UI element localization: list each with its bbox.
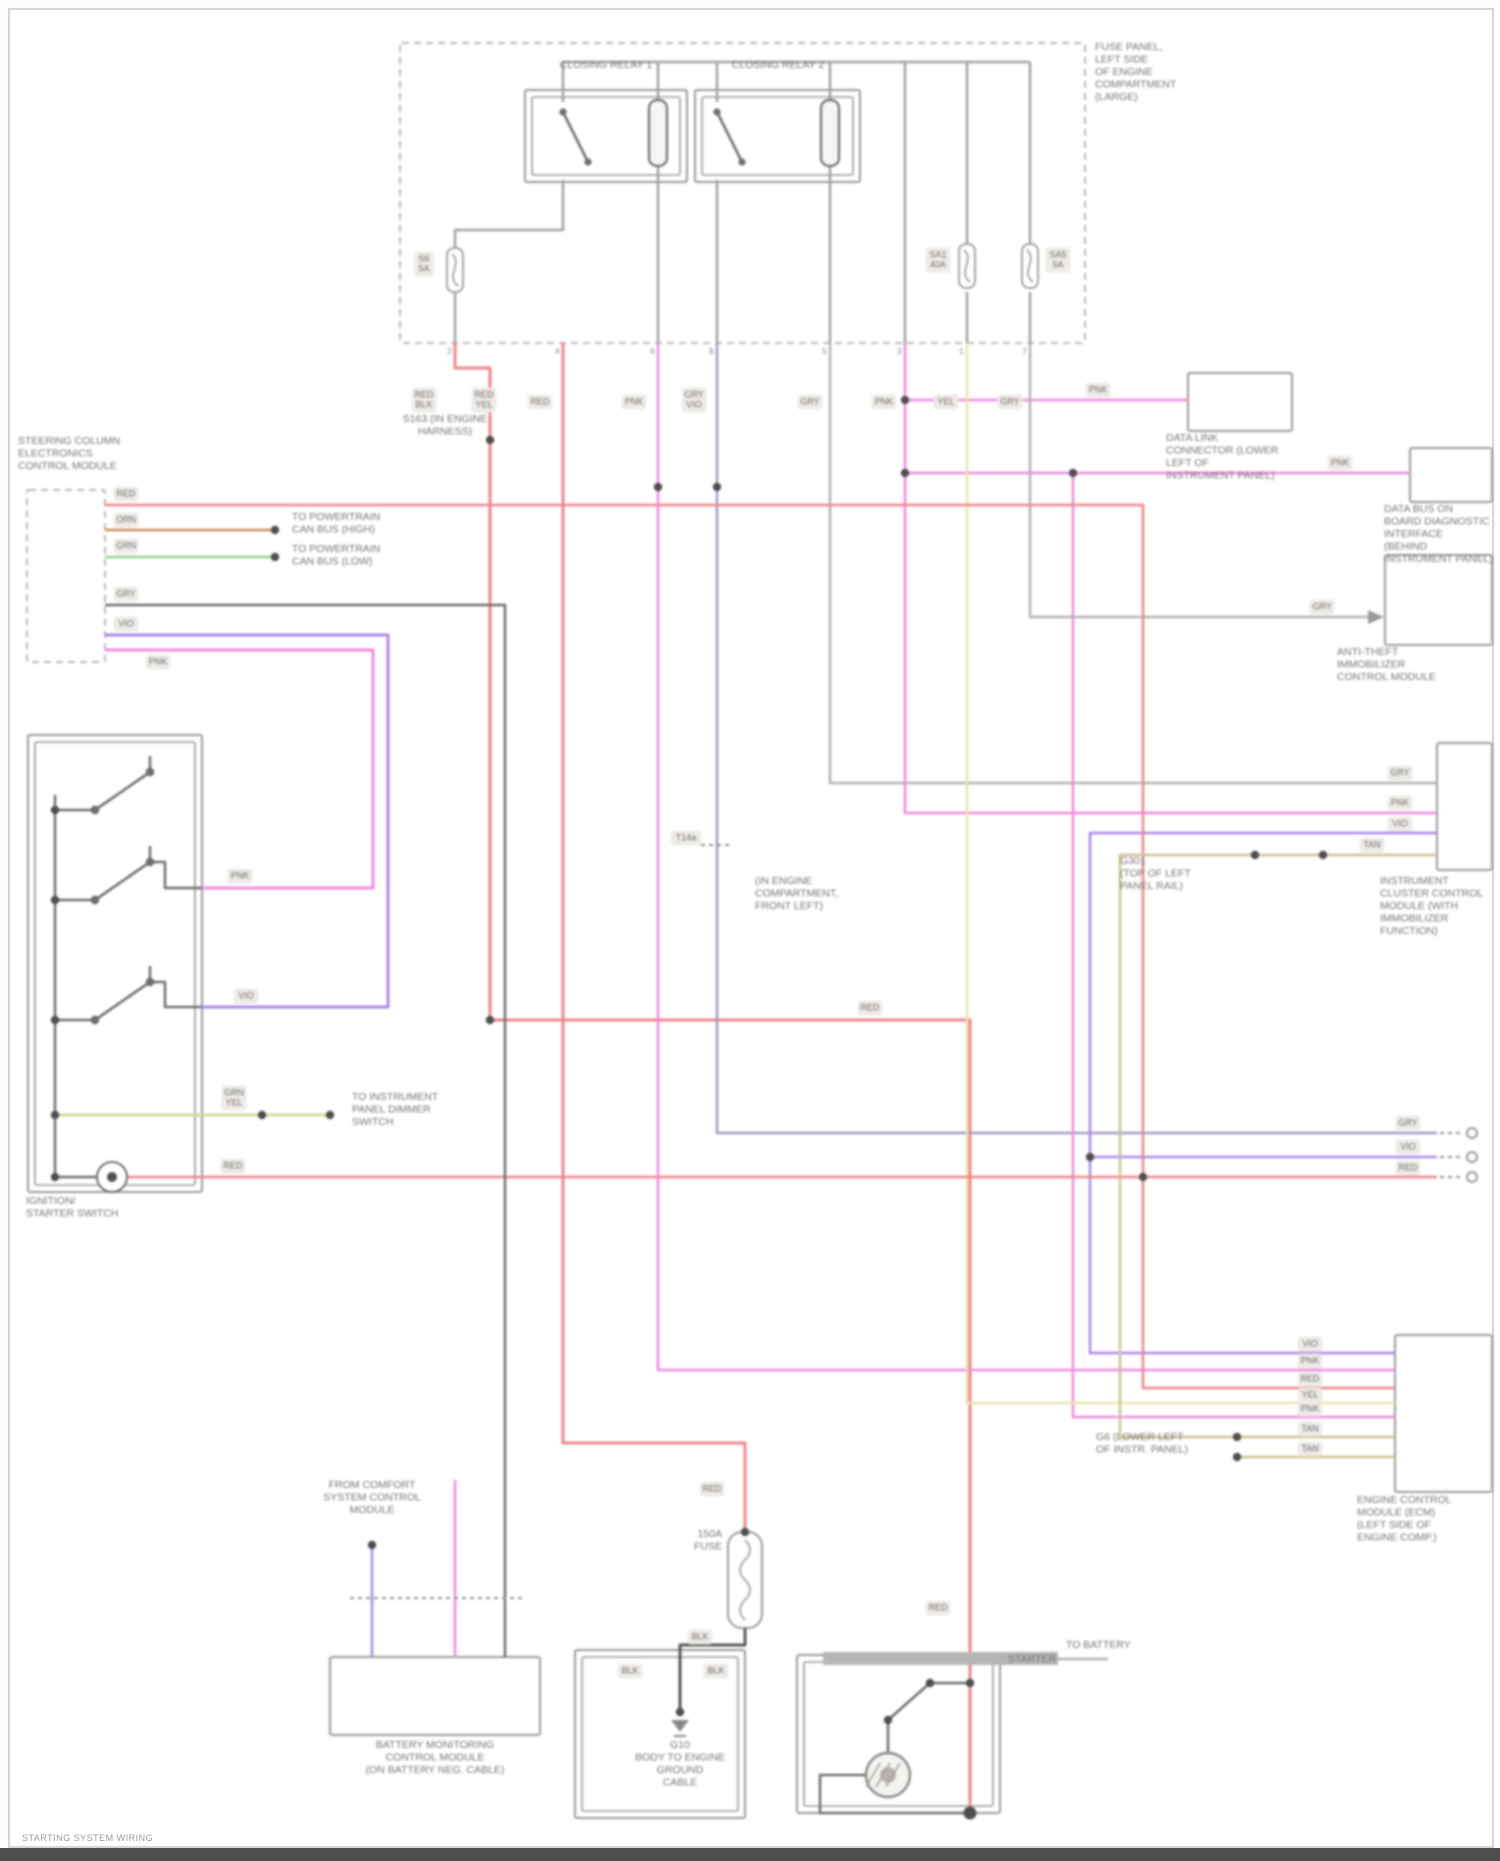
ground-box-label: CABLE xyxy=(663,1777,697,1789)
junction-dot xyxy=(1086,1153,1094,1161)
ecm-box xyxy=(1395,1335,1492,1492)
wire-label: TAN xyxy=(1301,1424,1318,1434)
wire-trunk-pnk-kline xyxy=(905,343,1437,813)
relay1-contact-tip xyxy=(584,158,591,165)
wire-label: BLK xyxy=(707,1666,724,1676)
data-link-connector-label: LEFT OF xyxy=(1166,457,1209,469)
battery-monitor-label: BATTERY MONITORING xyxy=(376,1739,494,1751)
fuse-panel-label: (LARGE) xyxy=(1095,91,1138,103)
data-link-connector-label: DATA LINK xyxy=(1166,432,1218,444)
junction-dot xyxy=(51,806,59,814)
wire-label: PNK xyxy=(149,657,168,667)
starter-label: STARTER xyxy=(1008,1653,1056,1665)
dimmer-label: TO INSTRUMENT xyxy=(352,1091,439,1103)
diagnostic-interface-label: (BEHIND xyxy=(1384,541,1428,553)
pin-number: 5 xyxy=(822,346,827,356)
wire-label: RED xyxy=(474,390,494,400)
relay2-contact-pivot xyxy=(713,108,720,115)
wire-label: VIO xyxy=(238,991,254,1001)
ground-g301-label: (TOP OF LEFT xyxy=(1120,868,1191,880)
fuse-panel-label: COMPARTMENT xyxy=(1095,79,1177,91)
wire-label: GRY xyxy=(1390,768,1409,778)
relay2-contact-tip xyxy=(738,158,745,165)
junction-dot xyxy=(368,1541,376,1549)
junction-dot xyxy=(1319,851,1327,859)
wire-label: RED xyxy=(116,489,136,499)
wire-label: YEL xyxy=(1301,1390,1318,1400)
wire-label: VIO xyxy=(1302,1339,1318,1349)
wire-label: PNK xyxy=(875,397,894,407)
wire-label: BLK xyxy=(691,1632,708,1642)
fusible-link-label: FUSE xyxy=(694,1541,722,1553)
comfort-label: FROM COMFORT xyxy=(329,1479,416,1491)
ground-box-label: GROUND xyxy=(657,1764,704,1776)
pin-number: 2 xyxy=(447,346,452,356)
junction-dot xyxy=(1139,1173,1147,1181)
wire-label: VIO xyxy=(1392,819,1408,829)
can-low-label: CAN BUS (LOW) xyxy=(292,556,373,568)
splice-s163-label: HARNESS) xyxy=(418,426,472,438)
junction-dot xyxy=(51,896,59,904)
battery-label: TO BATTERY xyxy=(1066,1639,1131,1651)
wiring-diagram-svg: 24685317REDBLKREDYELREDPNKGRYVIOGRYPNKYE… xyxy=(0,0,1500,1861)
wire-label: GRY xyxy=(684,390,703,400)
wire-label: RED xyxy=(414,390,434,400)
junction-dot xyxy=(486,436,494,444)
junction-dot xyxy=(713,483,721,491)
wire-label: RED xyxy=(702,1484,722,1494)
bottom-border-bar xyxy=(0,1848,1500,1861)
instrument-cluster-box xyxy=(1437,743,1492,870)
wire-tan-ground-run xyxy=(1120,855,1437,1437)
immobilizer-box xyxy=(1385,555,1492,645)
wire-label: PNK xyxy=(1301,1356,1320,1366)
ign-contact-2-tip xyxy=(146,858,153,865)
wire-trunk-gry xyxy=(830,343,1437,783)
pin-number: 1 xyxy=(959,346,964,356)
ignition-switch-label: STARTER SWITCH xyxy=(26,1208,118,1220)
pin-number: 7 xyxy=(1022,346,1027,356)
fuse-panel-label: FUSE PANEL, xyxy=(1095,41,1163,53)
wire-label: PNK xyxy=(1301,1404,1320,1414)
wire-label: SA5 xyxy=(1049,250,1066,260)
wire-label: PNK xyxy=(1391,798,1410,808)
ecm-label: ENGINE COMP.) xyxy=(1357,1532,1437,1544)
wire-label: GRY xyxy=(1000,397,1019,407)
junction-dot xyxy=(51,1111,59,1119)
comfort-label: SYSTEM CONTROL xyxy=(323,1492,421,1504)
pin-number: 3 xyxy=(897,346,902,356)
wire-pnk-to-ecm xyxy=(1073,473,1395,1417)
wire-label: RED xyxy=(223,1161,243,1171)
data-link-connector-label: CONNECTOR (LOWER xyxy=(1166,445,1279,457)
schematic-page: 24685317REDBLKREDYELREDPNKGRYVIOGRYPNKYE… xyxy=(0,0,1500,1861)
junction-dot xyxy=(654,483,662,491)
instrument-cluster-label: INSTRUMENT xyxy=(1380,875,1449,887)
wire-label: RED xyxy=(1300,1374,1320,1384)
steering-module-label: ELECTRONICS xyxy=(18,448,93,460)
wire-label: 40A xyxy=(930,260,946,270)
fuse-panel-label: OF ENGINE xyxy=(1095,66,1153,78)
relay1-coil xyxy=(649,100,667,166)
junction-dot xyxy=(1233,1433,1241,1441)
ground-box-label: G10 xyxy=(670,1739,690,1751)
wire-label: GRN xyxy=(224,1088,244,1098)
immobilizer-connector-arrow xyxy=(1368,610,1384,624)
fuse-panel-box xyxy=(400,43,1085,343)
inline-connector-label: FRONT LEFT) xyxy=(755,900,823,912)
relay2-coil xyxy=(821,100,839,166)
wire-label: T14a xyxy=(676,833,697,843)
junction-dot xyxy=(326,1111,334,1119)
wire-label: S6 xyxy=(418,254,429,264)
wire-label: TAN xyxy=(1301,1444,1318,1454)
dimmer-label: PANEL DIMMER xyxy=(352,1104,431,1116)
ignition-switch-label: IGNITION/ xyxy=(26,1195,76,1207)
junction-dot xyxy=(258,1111,266,1119)
junction-dot xyxy=(486,1016,494,1024)
can-low-label: TO POWERTRAIN xyxy=(292,543,380,555)
wire-label: PNK xyxy=(1331,458,1350,468)
diagnostic-interface-label: DATA BUS ON xyxy=(1384,503,1453,515)
junction-dot xyxy=(51,1016,59,1024)
comfort-label: MODULE xyxy=(350,1504,395,1516)
battery-monitor-label: (ON BATTERY NEG. CABLE) xyxy=(366,1764,505,1776)
wire-label: ORN xyxy=(116,515,136,525)
instrument-cluster-label: CLUSTER CONTROL xyxy=(1380,888,1483,900)
offpage-connector-circle xyxy=(1467,1128,1477,1138)
ground-g301-label: G301 xyxy=(1120,855,1146,867)
ground-g6-label: G6 (LOWER LEFT xyxy=(1096,1431,1184,1443)
instrument-cluster-label: FUNCTION) xyxy=(1380,925,1438,937)
ecm-label: ENGINE CONTROL xyxy=(1357,1494,1452,1506)
can-high-label: CAN BUS (HIGH) xyxy=(292,524,375,536)
wire-label: GRY xyxy=(1312,602,1331,612)
wire-red-main-feed xyxy=(105,505,1395,1388)
pin-number: 6 xyxy=(650,346,655,356)
junction-dot xyxy=(741,1528,749,1536)
relay1-contact-pivot xyxy=(559,108,566,115)
wire-label: RED xyxy=(928,1603,948,1613)
wire-label: GRY xyxy=(116,589,135,599)
ground-g301-label: PANEL RAIL) xyxy=(1120,880,1183,892)
ign-contact-3-pivot xyxy=(91,1016,98,1023)
wire-label: VIO xyxy=(686,400,702,410)
steering-module-box xyxy=(27,490,105,662)
wire-label: TAN xyxy=(1363,840,1380,850)
wire-label: PNK xyxy=(1089,385,1108,395)
wire-label: BLK xyxy=(415,400,432,410)
wire-label: 5A xyxy=(1052,260,1063,270)
wire-label: SA1 xyxy=(929,250,946,260)
inline-connector-label: COMPARTMENT, xyxy=(755,888,838,900)
data-link-connector-box xyxy=(1188,373,1292,431)
diagnostic-interface-label: BOARD DIAGNOSTIC xyxy=(1384,516,1490,528)
ecm-label: (LEFT SIDE OF xyxy=(1357,1519,1431,1531)
offpage-connector-circle xyxy=(1467,1172,1477,1182)
ecm-label: MODULE (ECM) xyxy=(1357,1507,1435,1519)
inline-connector-label: (IN ENGINE xyxy=(755,875,812,887)
can-high-label: TO POWERTRAIN xyxy=(292,511,380,523)
steering-module-label: CONTROL MODULE xyxy=(18,460,117,472)
junction-dot xyxy=(901,396,909,404)
wire-label: VIO xyxy=(118,619,134,629)
battery-monitor-label: CONTROL MODULE xyxy=(386,1752,485,1764)
wire-trunk-pnk xyxy=(658,343,1395,1370)
junction-dot xyxy=(884,1716,892,1724)
pin-number: 8 xyxy=(709,346,714,356)
junction-dot xyxy=(51,1173,59,1181)
diagnostic-interface-box xyxy=(1410,448,1492,502)
dimmer-label: SWITCH xyxy=(352,1116,393,1128)
instrument-cluster-label: MODULE (WITH xyxy=(1380,900,1458,912)
fuse-panel-label: LEFT SIDE xyxy=(1095,54,1148,66)
wire-label: RED xyxy=(530,397,550,407)
junction-dot xyxy=(271,553,279,561)
battery-monitor-box xyxy=(330,1657,540,1735)
ign-contact-3-tip xyxy=(146,978,153,985)
wire-label: PNK xyxy=(231,871,250,881)
wire-label: GRN xyxy=(116,541,136,551)
watermark-text: STARTING SYSTEM WIRING xyxy=(22,1833,153,1843)
immobilizer-label: CONTROL MODULE xyxy=(1337,671,1436,683)
junction-dot xyxy=(1251,851,1259,859)
wire-label: BLK xyxy=(621,1666,638,1676)
ignition-lamp-filament xyxy=(107,1172,117,1182)
wire-label: RED xyxy=(860,1003,880,1013)
wire-label: VIO xyxy=(1400,1142,1416,1152)
wire-label: YEL xyxy=(475,400,492,410)
junction-dot xyxy=(1233,1453,1241,1461)
ign-contact-1-pivot xyxy=(91,806,98,813)
steering-module-label: STEERING COLUMN xyxy=(18,435,120,447)
instrument-cluster-label: IMMOBILIZER xyxy=(1380,913,1449,925)
junction-dot xyxy=(271,526,279,534)
wire-label: RED xyxy=(1398,1163,1418,1173)
closing-relay-1-label: CLOSING RELAY 1 xyxy=(560,59,653,71)
diagnostic-interface-label: INTERFACE xyxy=(1384,528,1443,540)
wire-label: YEL xyxy=(225,1098,242,1108)
wire-label: GRY xyxy=(800,397,819,407)
wire-label: 5A xyxy=(418,264,429,274)
ground-g6-label: OF INSTR. PANEL) xyxy=(1096,1444,1188,1456)
wire-label: GRY xyxy=(1398,1118,1417,1128)
closing-relay-2-label: CLOSING RELAY 2 xyxy=(732,59,825,71)
ign-contact-2-pivot xyxy=(91,896,98,903)
junction-dot xyxy=(901,469,909,477)
diagnostic-interface-label: INSTRUMENT PANEL) xyxy=(1384,553,1493,565)
terminal-dot xyxy=(964,1807,977,1820)
offpage-connector-circle xyxy=(1467,1152,1477,1162)
junction-dot xyxy=(1069,469,1077,477)
data-link-connector-label: INSTRUMENT PANEL) xyxy=(1166,470,1275,482)
wire-label: PNK xyxy=(625,397,644,407)
splice-s163-label: S163 (IN ENGINE xyxy=(403,413,488,425)
wire-label: YEL xyxy=(937,397,954,407)
fusible-link-label: 150A xyxy=(697,1528,722,1540)
wiring-diagram: 24685317REDBLKREDYELREDPNKGRYVIOGRYPNKYE… xyxy=(0,0,1500,1861)
immobilizer-label: ANTI-THEFT xyxy=(1337,646,1399,658)
ground-box-label: BODY TO ENGINE xyxy=(635,1752,725,1764)
wire-trunk-red-1 xyxy=(455,343,490,1020)
ign-contact-1-tip xyxy=(146,768,153,775)
pin-number: 4 xyxy=(555,346,560,356)
immobilizer-label: IMMOBILIZER xyxy=(1337,659,1406,671)
junction-dot xyxy=(926,1679,934,1687)
junction-dot xyxy=(966,1679,974,1687)
junction-dot xyxy=(676,1708,684,1716)
